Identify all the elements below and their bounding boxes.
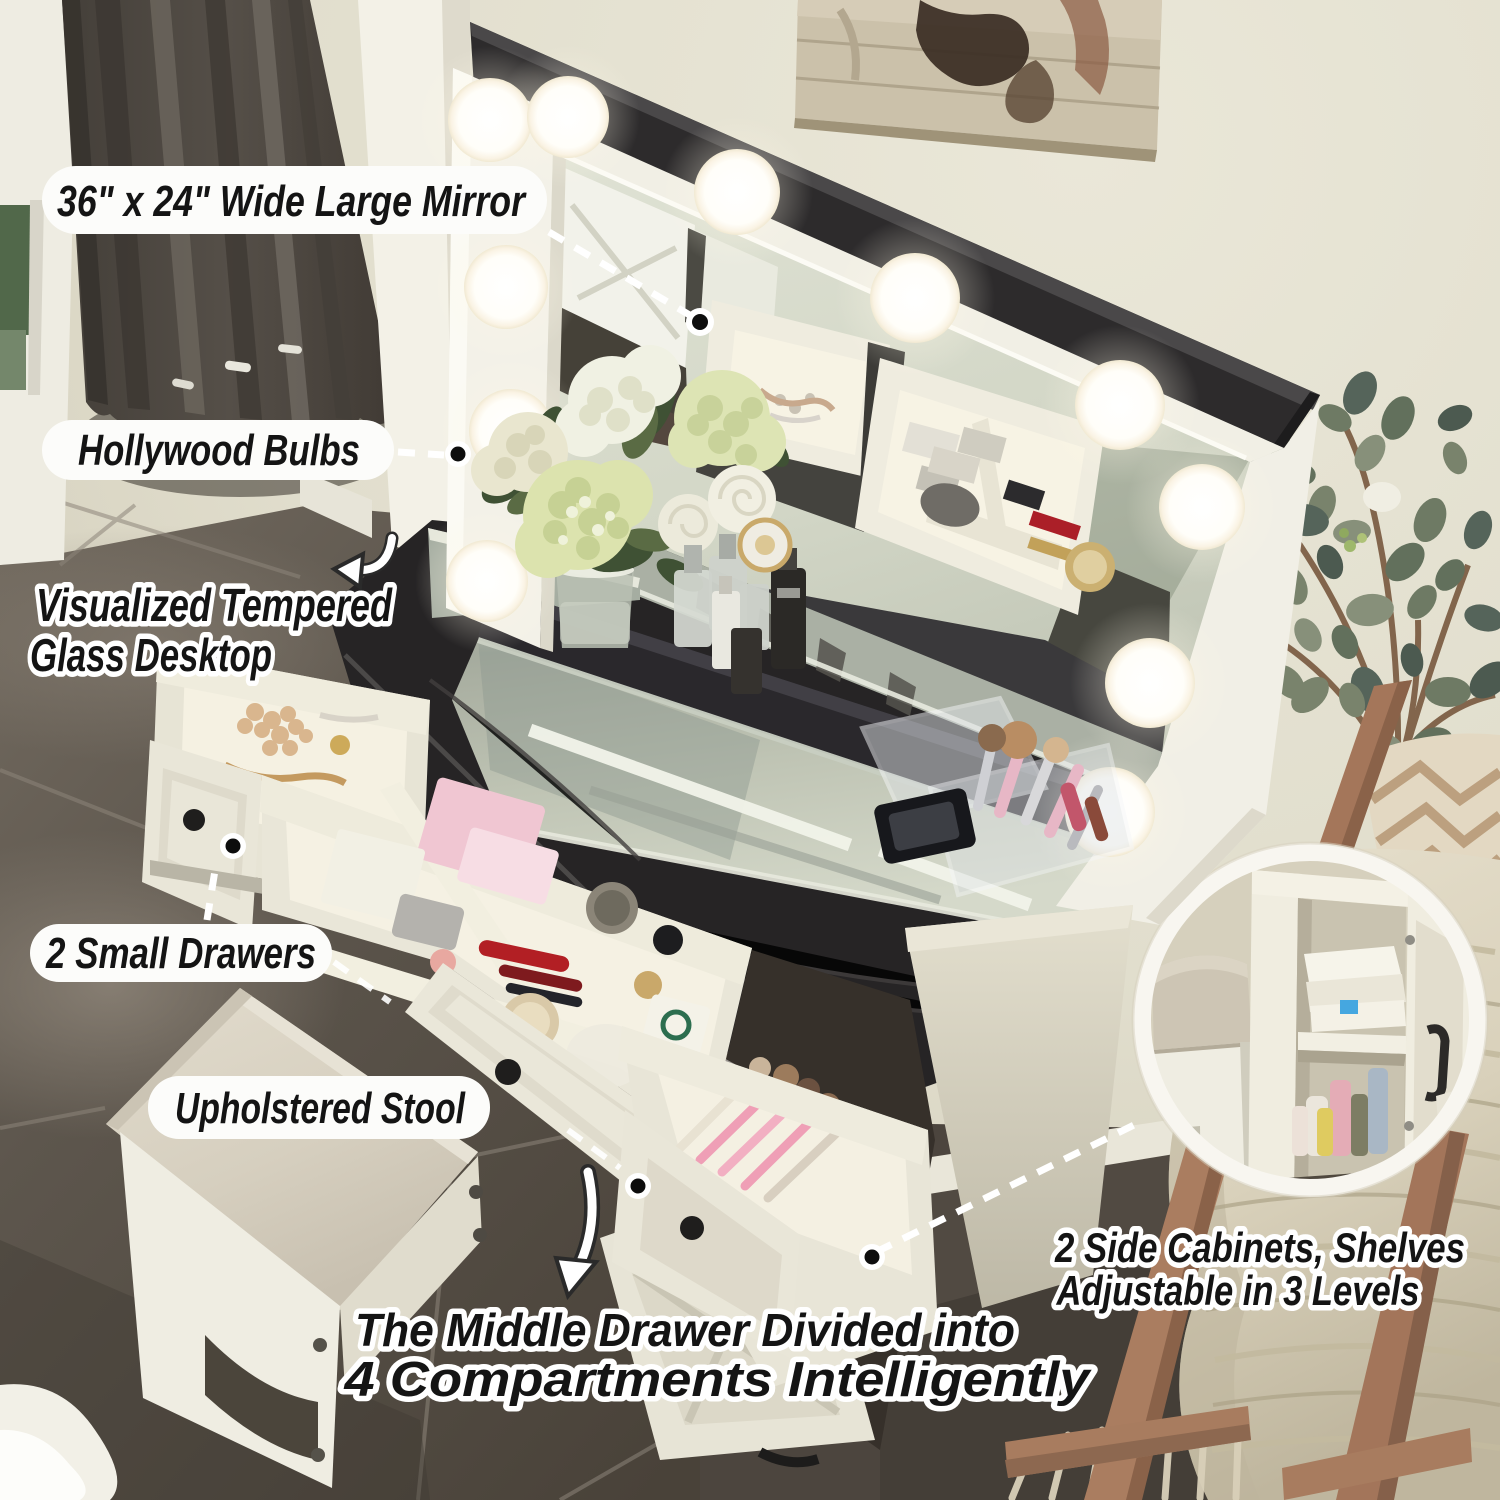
svg-text:2 Small Drawers: 2 Small Drawers (45, 929, 316, 978)
svg-text:36" x 24" Wide Large Mirror: 36" x 24" Wide Large Mirror (57, 177, 527, 226)
svg-text:4 Compartments Intelligently: 4 Compartments Intelligently (343, 1353, 1092, 1407)
svg-text:Glass Desktop: Glass Desktop (30, 629, 272, 681)
svg-text:Upholstered Stool: Upholstered Stool (175, 1084, 466, 1133)
svg-text:Adjustable in 3 Levels: Adjustable in 3 Levels (1056, 1267, 1420, 1314)
svg-text:Hollywood Bulbs: Hollywood Bulbs (78, 426, 360, 475)
svg-text:The Middle Drawer Divided into: The Middle Drawer Divided into (355, 1304, 1015, 1356)
svg-text:Visualized Tempered: Visualized Tempered (36, 579, 393, 631)
svg-text:2 Side Cabinets, Shelves: 2 Side Cabinets, Shelves (1054, 1224, 1465, 1271)
